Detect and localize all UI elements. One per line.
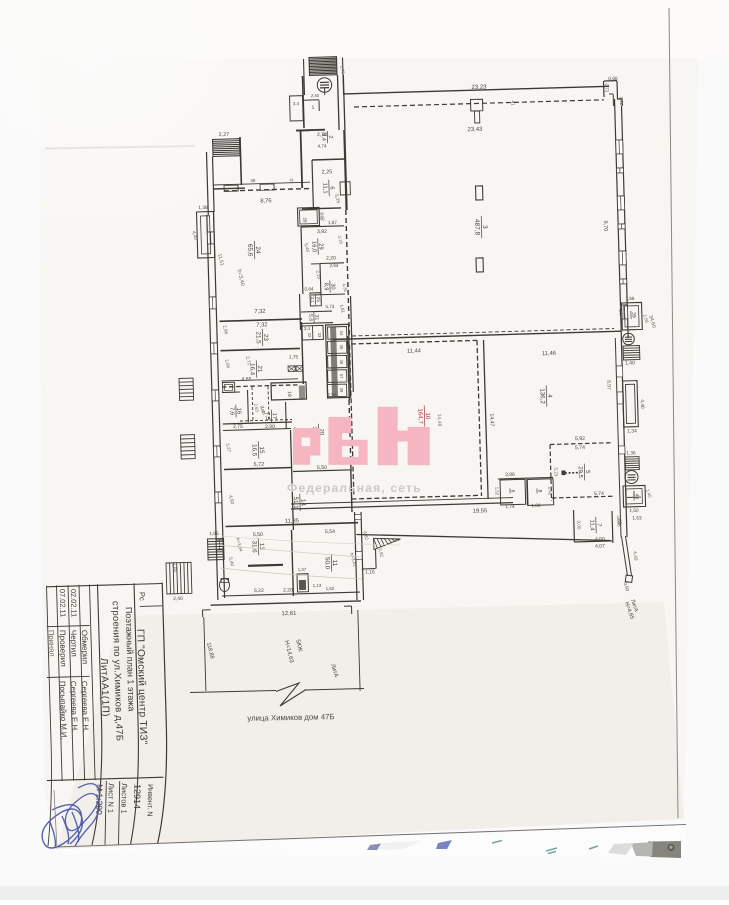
svg-text:2,20: 2,20 bbox=[326, 255, 336, 261]
svg-text:2,20: 2,20 bbox=[283, 587, 293, 593]
svg-text:5,54: 5,54 bbox=[325, 529, 335, 535]
svg-text:3,96: 3,96 bbox=[505, 472, 515, 478]
svg-text:4,40: 4,40 bbox=[639, 399, 645, 409]
svg-text:2,40: 2,40 bbox=[547, 487, 552, 496]
svg-text:8,97: 8,97 bbox=[605, 380, 611, 390]
svg-text:Принял: Принял bbox=[47, 630, 57, 657]
svg-text:Проверил: Проверил bbox=[58, 630, 68, 667]
svg-text:1,34: 1,34 bbox=[627, 428, 637, 434]
svg-text:41: 41 bbox=[510, 100, 515, 106]
svg-text:Обмерил: Обмерил bbox=[80, 630, 90, 665]
svg-text:Рс: Рс bbox=[138, 592, 147, 601]
svg-text:1,86: 1,86 bbox=[531, 503, 541, 509]
svg-text:4,74: 4,74 bbox=[317, 143, 327, 148]
svg-text:4,07: 4,07 bbox=[595, 543, 605, 549]
svg-text:Чертил: Чертил bbox=[69, 630, 79, 657]
svg-text:12,61: 12,61 bbox=[281, 611, 297, 617]
svg-text:1,75: 1,75 bbox=[289, 354, 299, 360]
svg-text:11,44: 11,44 bbox=[407, 348, 422, 354]
svg-text:9,70: 9,70 bbox=[602, 221, 608, 232]
svg-text:3,4: 3,4 bbox=[293, 101, 300, 106]
svg-text:2,75: 2,75 bbox=[233, 424, 243, 430]
svg-text:07.02.11: 07.02.11 bbox=[58, 589, 68, 617]
svg-text:23: 23 bbox=[262, 334, 269, 342]
svg-text:3: 3 bbox=[481, 225, 488, 229]
svg-text:12914: 12914 bbox=[132, 784, 143, 809]
svg-text:9,4: 9,4 bbox=[320, 133, 326, 141]
svg-text:улица Химиков дом 47Б: улица Химиков дом 47Б bbox=[247, 712, 334, 723]
svg-text:2,25: 2,25 bbox=[322, 169, 333, 175]
svg-text:0,72: 0,72 bbox=[604, 84, 609, 93]
svg-text:21: 21 bbox=[256, 365, 263, 373]
svg-text:32: 32 bbox=[307, 333, 312, 338]
svg-text:1,37: 1,37 bbox=[298, 567, 307, 572]
svg-text:35: 35 bbox=[339, 345, 344, 350]
svg-text:33: 33 bbox=[317, 333, 322, 338]
svg-text:2,64: 2,64 bbox=[329, 263, 339, 268]
svg-text:0,68: 0,68 bbox=[608, 76, 618, 82]
svg-text:65,6: 65,6 bbox=[246, 244, 253, 257]
svg-text:2,55: 2,55 bbox=[327, 392, 337, 398]
svg-text:1,85: 1,85 bbox=[209, 531, 219, 537]
svg-text:3,00: 3,00 bbox=[576, 520, 581, 530]
svg-text:164,7: 164,7 bbox=[416, 408, 423, 424]
svg-text:37: 37 bbox=[339, 374, 344, 379]
svg-text:23,23: 23,23 bbox=[471, 85, 487, 91]
svg-text:19: 19 bbox=[286, 391, 292, 397]
svg-text:1,38: 1,38 bbox=[198, 205, 208, 211]
svg-text:5,50: 5,50 bbox=[253, 532, 263, 538]
svg-text:3,92: 3,92 bbox=[317, 229, 327, 235]
svg-text:24: 24 bbox=[254, 246, 261, 254]
svg-text:2,40: 2,40 bbox=[173, 596, 183, 602]
svg-text:1,91: 1,91 bbox=[319, 212, 324, 221]
svg-text:11: 11 bbox=[331, 560, 338, 567]
svg-text:0,84: 0,84 bbox=[304, 286, 314, 291]
svg-text:15: 15 bbox=[258, 446, 265, 454]
svg-text:27: 27 bbox=[289, 178, 294, 184]
svg-text:3,4: 3,4 bbox=[304, 326, 311, 331]
svg-text:1: 1 bbox=[311, 105, 314, 111]
svg-text:25: 25 bbox=[316, 297, 321, 303]
svg-text:11,46: 11,46 bbox=[542, 351, 556, 357]
svg-text:7,6: 7,6 bbox=[228, 407, 234, 415]
svg-text:02.02.11: 02.02.11 bbox=[69, 589, 79, 617]
svg-text:Сергеева Е.Н.: Сергеева Е.Н. bbox=[80, 681, 90, 733]
svg-text:38: 38 bbox=[339, 388, 344, 393]
svg-text:11,85: 11,85 bbox=[285, 518, 299, 524]
svg-text:Сергеева Е.Н.: Сергеева Е.Н. bbox=[69, 681, 79, 733]
svg-text:5,73: 5,73 bbox=[325, 304, 335, 309]
svg-text:5,92: 5,92 bbox=[575, 436, 585, 442]
svg-text:14,48: 14,48 bbox=[436, 414, 442, 427]
svg-text:5,74: 5,74 bbox=[594, 491, 604, 497]
svg-text:2,27: 2,27 bbox=[219, 132, 230, 138]
svg-text:Инвент. N: Инвент. N bbox=[146, 784, 156, 817]
svg-text:1,63: 1,63 bbox=[632, 515, 642, 521]
svg-text:Федеральная, сеть: Федеральная, сеть bbox=[287, 481, 422, 495]
svg-text:1,68: 1,68 bbox=[625, 296, 635, 301]
svg-text:487,8: 487,8 bbox=[473, 219, 480, 236]
svg-text:2,40: 2,40 bbox=[311, 93, 320, 98]
svg-text:1,74: 1,74 bbox=[505, 504, 515, 510]
svg-text:50,0: 50,0 bbox=[323, 557, 330, 570]
svg-text:16,0: 16,0 bbox=[310, 241, 316, 252]
svg-text:1,50: 1,50 bbox=[629, 508, 639, 514]
svg-text:34: 34 bbox=[339, 331, 344, 336]
svg-text:1,40: 1,40 bbox=[625, 360, 635, 366]
svg-text:21,5: 21,5 bbox=[254, 332, 261, 345]
svg-text:5,72: 5,72 bbox=[254, 462, 265, 468]
svg-text:11,1: 11,1 bbox=[321, 183, 327, 194]
svg-text:14,47: 14,47 bbox=[488, 413, 494, 426]
svg-text:1,37: 1,37 bbox=[618, 309, 623, 318]
svg-text:ЛитАА1(1П): ЛитАА1(1П) bbox=[98, 658, 111, 717]
svg-text:28: 28 bbox=[302, 217, 307, 223]
svg-text:3,1: 3,1 bbox=[310, 296, 315, 303]
svg-text:5,22: 5,22 bbox=[254, 588, 264, 594]
svg-text:Листов 1: Листов 1 bbox=[119, 783, 129, 814]
svg-text:1,13: 1,13 bbox=[313, 583, 322, 588]
svg-text:10: 10 bbox=[424, 412, 431, 420]
svg-text:5,6: 5,6 bbox=[307, 314, 313, 321]
svg-text:1,36: 1,36 bbox=[626, 450, 636, 456]
svg-text:1,16: 1,16 bbox=[365, 569, 375, 575]
svg-text:23,43: 23,43 bbox=[467, 127, 483, 133]
svg-text:4,00: 4,00 bbox=[595, 536, 605, 542]
svg-text:19,55: 19,55 bbox=[473, 508, 488, 514]
svg-text:36: 36 bbox=[339, 360, 344, 365]
svg-text:7,32: 7,32 bbox=[254, 309, 265, 315]
svg-text:1,62: 1,62 bbox=[326, 586, 335, 591]
svg-text:31,6: 31,6 bbox=[250, 541, 257, 554]
svg-text:Лист N 1: Лист N 1 bbox=[106, 783, 116, 813]
svg-text:1,52: 1,52 bbox=[494, 487, 499, 496]
svg-text:4,65: 4,65 bbox=[242, 376, 252, 382]
svg-text:Посыпайко М.И.: Посыпайко М.И. bbox=[58, 681, 69, 740]
svg-text:14: 14 bbox=[299, 499, 306, 507]
svg-text:11,4: 11,4 bbox=[588, 520, 594, 532]
svg-text:8,9: 8,9 bbox=[323, 283, 329, 291]
svg-text:16,5: 16,5 bbox=[250, 444, 257, 457]
svg-text:8,76: 8,76 bbox=[260, 198, 271, 204]
svg-text:7,32: 7,32 bbox=[256, 322, 267, 328]
svg-text:136,2: 136,2 bbox=[538, 388, 545, 404]
svg-text:36: 36 bbox=[250, 178, 256, 183]
svg-text:3,10: 3,10 bbox=[619, 97, 624, 106]
svg-text:5,74: 5,74 bbox=[575, 445, 585, 451]
svg-text:5,23: 5,23 bbox=[553, 467, 558, 477]
svg-text:1,87: 1,87 bbox=[328, 220, 338, 225]
